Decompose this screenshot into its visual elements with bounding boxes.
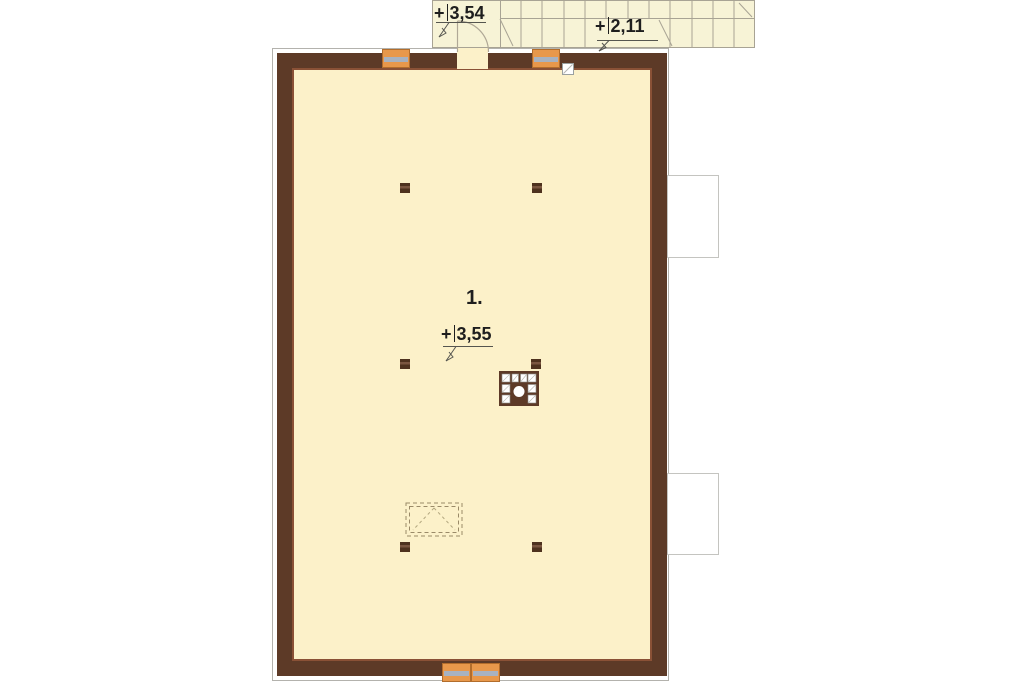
post-bottom-right <box>532 542 542 552</box>
post-bottom-left <box>400 542 410 552</box>
window-bottom-left-sash <box>442 663 471 682</box>
post-middle-right <box>531 359 541 369</box>
post-middle-left <box>400 359 410 369</box>
level-marker-stairs <box>593 36 661 52</box>
window-pane <box>473 671 498 676</box>
room-number: 1. <box>466 288 483 308</box>
level-value: 3,55 <box>457 325 492 343</box>
level-value: 2,11 <box>611 17 645 35</box>
level-marker-landing <box>432 20 494 42</box>
level-prefix: + <box>595 17 606 35</box>
window-top-left <box>382 49 410 68</box>
roof-window-symbol <box>562 63 574 75</box>
level-tick <box>447 4 448 21</box>
level-tick <box>454 325 455 342</box>
window-bottom-right-sash <box>471 663 500 682</box>
level-label-stairs: + 2,11 <box>595 17 645 35</box>
chimney <box>499 371 539 406</box>
window-pane <box>384 57 408 62</box>
post-top-left <box>400 183 410 193</box>
floor-plan: + 3,54 + 2,11 1. + 3,55 <box>0 0 1024 682</box>
hatch-outline <box>405 501 463 539</box>
level-marker-room <box>439 343 501 365</box>
level-tick <box>608 17 609 34</box>
dormer-outline-bottom <box>667 473 719 555</box>
window-pane <box>534 57 558 62</box>
post-top-right <box>532 183 542 193</box>
dormer-outline-top <box>667 175 719 258</box>
level-prefix: + <box>441 325 452 343</box>
window-top-right <box>532 49 560 68</box>
level-label-room: + 3,55 <box>441 325 492 343</box>
window-pane <box>444 671 469 676</box>
